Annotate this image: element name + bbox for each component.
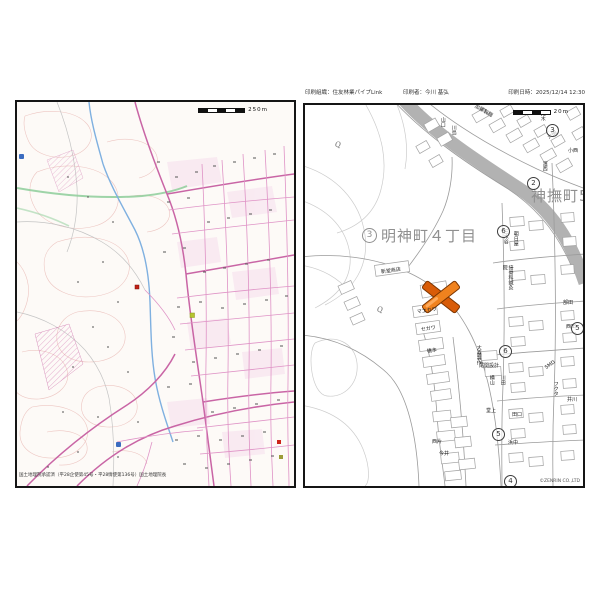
circled-number-badge: 6 <box>499 345 512 358</box>
building-label: フクタ <box>552 381 558 396</box>
building-label: 朝日屋 <box>512 231 518 246</box>
left-map-panel[interactable]: 250m 国土地理院承認済（平28企使第45号・平28情使第136号）国土地理院… <box>15 100 296 488</box>
circled-number-badge: 4 <box>504 475 517 488</box>
leftmap-contours <box>17 111 170 465</box>
leftmap-hatched-areas <box>35 150 83 390</box>
building-label: 大森製作 <box>475 345 481 365</box>
building-label: 浜中 <box>508 441 518 447</box>
building-label: 山口 <box>439 117 445 127</box>
right-map-panel[interactable]: 20m 3 明神町４丁目 神撫町5 3 2 6 5 6 5 4 Q Q 荒木 大… <box>303 103 585 488</box>
print-preview-canvas: 印刷組織：住友林業パイプLink 印刷者：今川 基弘 印刷日時：2025/12/… <box>0 0 600 600</box>
building-label: 尾関設計 <box>479 364 499 370</box>
print-org-label: 印刷組織：住友林業パイプLink <box>305 88 382 96</box>
building-label: 部田 <box>563 301 573 307</box>
print-user-label: 印刷者：今川 基弘 <box>403 88 449 96</box>
scalebar-label: 20m <box>554 109 569 115</box>
building-label: 川島 <box>450 125 456 135</box>
circled-number-badge: 5 <box>571 322 584 335</box>
leftmap-street-grid <box>117 146 294 486</box>
q-symbol: Q <box>377 306 383 314</box>
print-datetime-label: 印刷日時：2025/12/14 12:30 <box>508 88 585 96</box>
district-label-shinbucho: 神撫町5 <box>531 185 585 206</box>
blue-facility-icon <box>19 154 24 159</box>
leftmap-minor-roads <box>17 102 145 486</box>
building-label: 接骨科鍼灸院 <box>501 265 513 291</box>
district-label-meijincho: 3 明神町４丁目 <box>362 225 477 246</box>
scalebar-label: 250m <box>248 107 268 113</box>
left-map-attribution: 国土地理院承認済（平28企使第45号・平28情使第136号）国土地理院長 <box>19 472 166 478</box>
yellow-facility-icon <box>190 313 195 318</box>
print-header: 印刷組織：住友林業パイプLink 印刷者：今川 基弘 印刷日時：2025/12/… <box>303 88 585 97</box>
q-symbol: Q <box>335 141 341 149</box>
left-map-scalebar: 250m <box>198 107 268 113</box>
red-facility-icon <box>277 440 281 444</box>
circled-number-badge: 2 <box>527 177 540 190</box>
rightmap-terrain-curves <box>305 105 407 486</box>
building-label: 井川 <box>567 398 577 404</box>
building-label: 横山 <box>488 375 494 385</box>
building-label: 西片 <box>432 440 442 446</box>
circled-number-badge: 6 <box>497 225 510 238</box>
building-label: 小西 <box>568 149 578 155</box>
destination-marker-left <box>135 285 139 289</box>
olive-facility-icon <box>279 455 283 459</box>
district-circled-number: 3 <box>362 228 377 243</box>
leftmap-river <box>89 102 173 442</box>
scalebar-segments <box>513 110 551 115</box>
building-label: 濱西 <box>541 161 547 171</box>
scalebar-segments <box>198 108 245 113</box>
leftmap-green-route <box>17 186 187 226</box>
district-name: 神撫町5 <box>531 185 585 206</box>
circled-number-badge: 5 <box>492 428 505 441</box>
left-map-artwork <box>17 102 294 486</box>
building-label: 堂上 <box>486 409 496 415</box>
building-label: 田口 <box>512 413 522 419</box>
building-label: 川田 <box>499 375 505 385</box>
right-map-copyright: ©ZENRIN CO.,LTD <box>539 479 580 484</box>
building-label: 今井 <box>439 452 449 458</box>
right-map-scalebar: 20m <box>513 109 569 115</box>
blue-facility-icon <box>116 442 121 447</box>
district-name: 明神町４丁目 <box>381 225 477 246</box>
circled-number-badge: 3 <box>546 124 559 137</box>
